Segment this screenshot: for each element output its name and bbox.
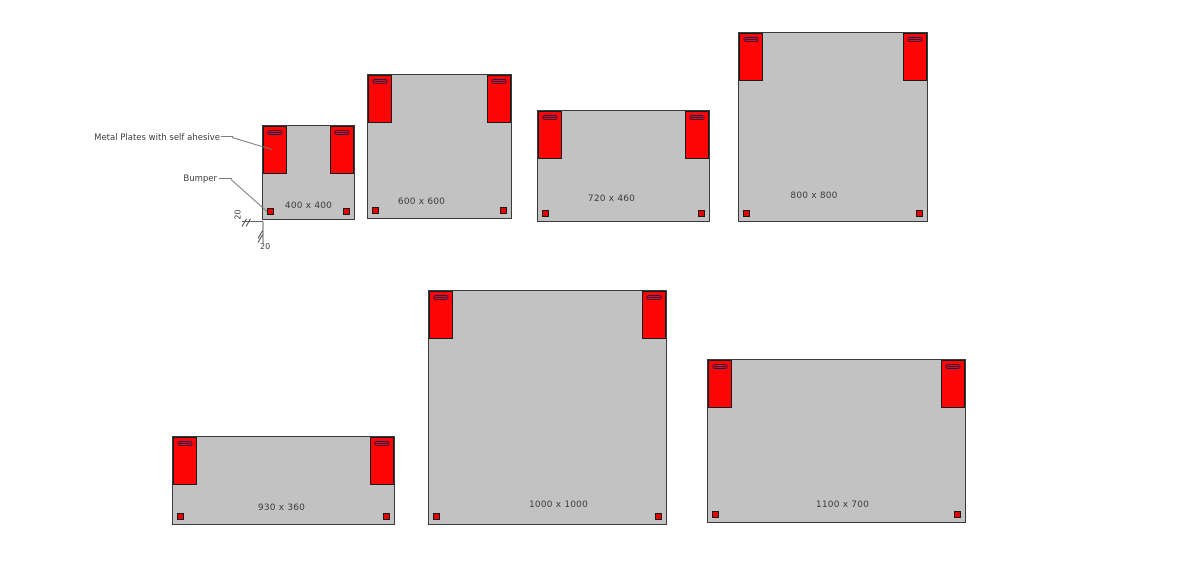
panel-size-label: 800 x 800 bbox=[790, 191, 837, 201]
plate-slot-icon bbox=[434, 295, 449, 300]
panel-930x360: 930 x 360 bbox=[172, 436, 395, 525]
metal-plate-top-right bbox=[487, 75, 511, 123]
plate-slot-icon bbox=[543, 115, 558, 120]
plate-slot-icon bbox=[713, 364, 728, 369]
metal-plate-top-left bbox=[173, 437, 197, 485]
plate-slot-bar bbox=[494, 81, 505, 82]
plate-slot-icon bbox=[690, 115, 705, 120]
panel-size-label: 930 x 360 bbox=[258, 503, 305, 513]
plate-slot-icon bbox=[335, 130, 350, 135]
bumper-bottom-right bbox=[343, 208, 350, 215]
metal-plate-top-right bbox=[642, 291, 666, 339]
bumper-bottom-right bbox=[500, 207, 507, 214]
bumper-bottom-right bbox=[655, 513, 662, 520]
metal-plate-top-left bbox=[708, 360, 732, 408]
metal-plate-top-right bbox=[941, 360, 965, 408]
bumper-bottom-right bbox=[383, 513, 390, 520]
bumper-bottom-right bbox=[954, 511, 961, 518]
panel-720x460: 720 x 460 bbox=[537, 110, 710, 222]
panel-size-label: 720 x 460 bbox=[588, 194, 635, 204]
metal-plate-top-left bbox=[263, 126, 287, 174]
plate-slot-bar bbox=[436, 297, 447, 298]
plate-slot-bar bbox=[715, 366, 726, 367]
plate-slot-icon bbox=[178, 441, 193, 446]
metal-plate-top-right bbox=[685, 111, 709, 159]
plate-slot-bar bbox=[180, 443, 191, 444]
plate-slot-bar bbox=[375, 81, 386, 82]
plate-slot-bar bbox=[649, 297, 660, 298]
panel-400x400: 400 x 400 bbox=[262, 125, 355, 220]
plate-slot-bar bbox=[270, 132, 281, 133]
plate-slot-icon bbox=[492, 79, 507, 84]
bumper-bottom-left bbox=[542, 210, 549, 217]
panel-1000x1000: 1000 x 1000 bbox=[428, 290, 667, 525]
plate-slot-icon bbox=[647, 295, 662, 300]
plate-slot-bar bbox=[692, 117, 703, 118]
metal-plate-top-left bbox=[429, 291, 453, 339]
plate-slot-bar bbox=[545, 117, 556, 118]
bumper-bottom-left bbox=[267, 208, 274, 215]
bumper-bottom-left bbox=[712, 511, 719, 518]
plate-slot-bar bbox=[337, 132, 348, 133]
plate-slot-icon bbox=[268, 130, 283, 135]
panel-800x800: 800 x 800 bbox=[738, 32, 928, 222]
metal-plate-top-right bbox=[903, 33, 927, 81]
bumper-bottom-left bbox=[177, 513, 184, 520]
metal-plate-top-right bbox=[370, 437, 394, 485]
bumper-bottom-left bbox=[433, 513, 440, 520]
metal-plate-top-left bbox=[368, 75, 392, 123]
panel-size-label: 600 x 600 bbox=[398, 197, 445, 207]
plate-slot-icon bbox=[946, 364, 961, 369]
panel-1100x700: 1100 x 700 bbox=[707, 359, 966, 523]
diagram-canvas: 400 x 400600 x 600720 x 460800 x 800930 … bbox=[0, 0, 1200, 579]
bumper-bottom-left bbox=[743, 210, 750, 217]
bumper-bottom-left bbox=[372, 207, 379, 214]
dimension-20-bottom: 20 bbox=[260, 242, 270, 251]
plate-slot-bar bbox=[746, 39, 757, 40]
dimension-20-left: 20 bbox=[234, 209, 243, 219]
plate-slot-bar bbox=[910, 39, 921, 40]
metal-plate-top-left bbox=[538, 111, 562, 159]
metal-plate-top-right bbox=[330, 126, 354, 174]
plate-slot-icon bbox=[373, 79, 388, 84]
plate-slot-bar bbox=[377, 443, 388, 444]
plate-slot-icon bbox=[908, 37, 923, 42]
bumper-bottom-right bbox=[698, 210, 705, 217]
bumper-bottom-right bbox=[916, 210, 923, 217]
panel-600x600: 600 x 600 bbox=[367, 74, 512, 219]
metal-plates-label: Metal Plates with self ahesive bbox=[70, 133, 220, 143]
panel-size-label: 400 x 400 bbox=[285, 201, 332, 211]
panel-size-label: 1000 x 1000 bbox=[529, 500, 588, 510]
plate-slot-icon bbox=[375, 441, 390, 446]
bumper-label: Bumper bbox=[97, 174, 217, 184]
plate-slot-icon bbox=[744, 37, 759, 42]
panel-size-label: 1100 x 700 bbox=[816, 500, 869, 510]
dimension-line-vertical bbox=[263, 222, 264, 244]
plate-slot-bar bbox=[948, 366, 959, 367]
metal-plate-top-left bbox=[739, 33, 763, 81]
